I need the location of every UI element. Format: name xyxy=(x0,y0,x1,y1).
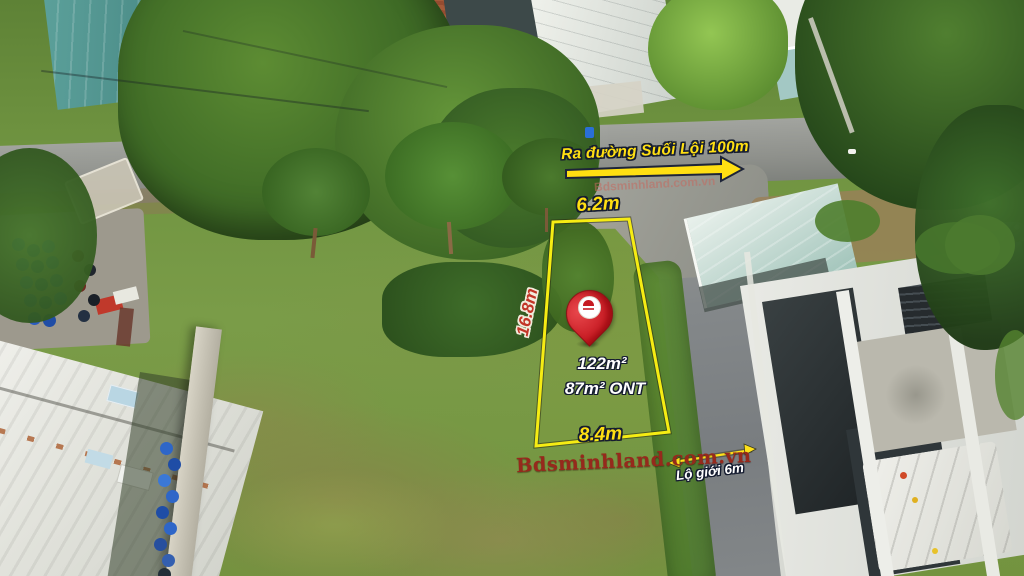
area-total-label: 122m² xyxy=(552,355,652,374)
tree-trunk xyxy=(545,208,548,232)
water-barrel xyxy=(585,127,594,138)
bush xyxy=(945,215,1015,275)
courtyard-object xyxy=(900,472,907,479)
aerial-photo: Ra đường Suối Lội 100m Bdsminhland.com.v… xyxy=(0,0,1024,576)
motorbike xyxy=(848,149,856,154)
courtyard-object xyxy=(932,548,938,554)
small-tree xyxy=(262,148,370,236)
dimension-bottom-label: 8.4m xyxy=(558,424,644,448)
area-ont-label: 87m² ONT xyxy=(546,380,664,399)
bush xyxy=(815,200,880,242)
small-tree xyxy=(385,122,520,230)
pin-logo-mark xyxy=(583,308,594,310)
barrel-cluster xyxy=(160,442,173,455)
dimension-top-label: 6.2m xyxy=(558,193,639,218)
pin-logo-mark xyxy=(583,300,594,306)
courtyard-object xyxy=(912,497,918,503)
